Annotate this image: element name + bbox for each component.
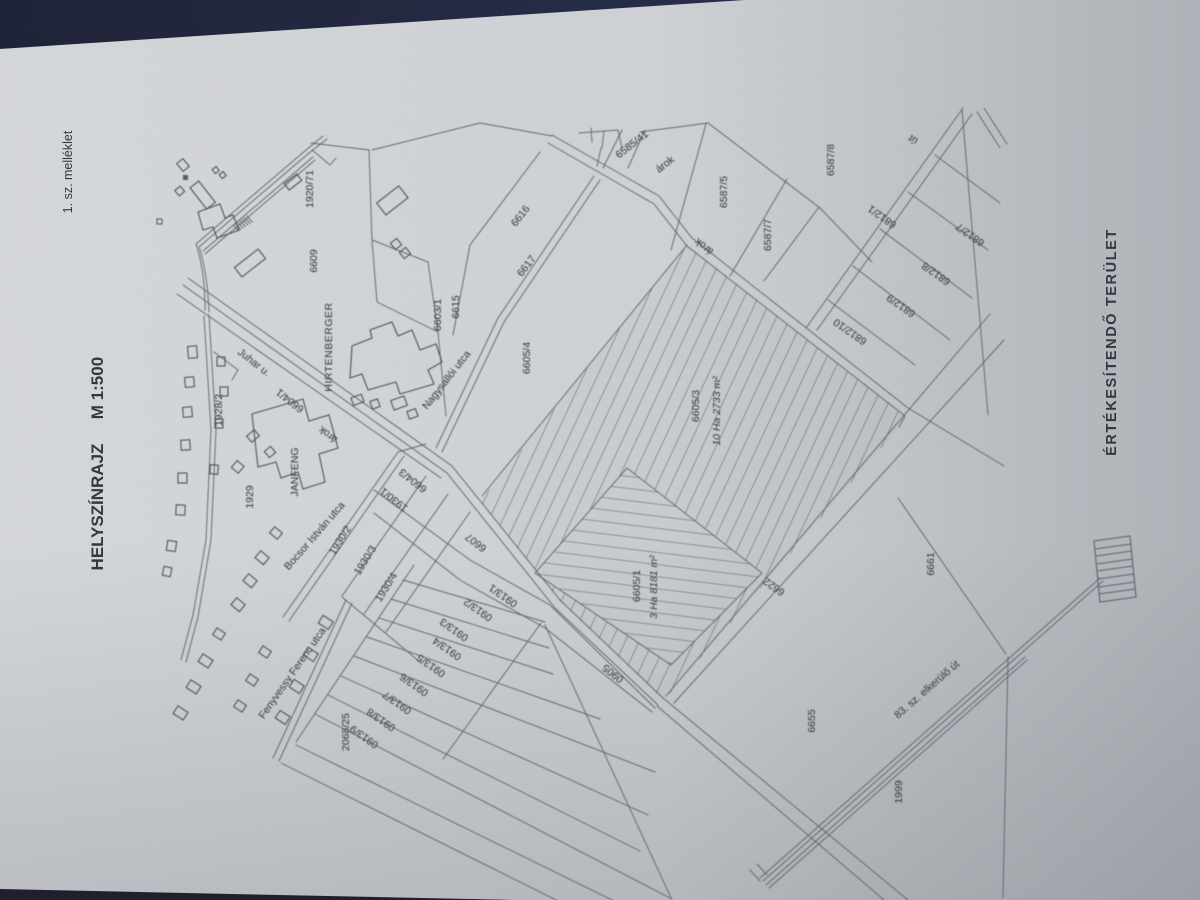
svg-text:1999: 1999: [893, 780, 905, 804]
svg-text:6605/3: 6605/3: [690, 390, 702, 422]
svg-text:1. sz. melléklet: 1. sz. melléklet: [61, 130, 75, 213]
svg-text:10 Ha 2733 m²: 10 Ha 2733 m²: [711, 376, 723, 446]
svg-text:1928/2: 1928/2: [213, 394, 225, 426]
svg-text:1929: 1929: [244, 485, 256, 509]
svg-text:M 1:500: M 1:500: [88, 357, 107, 419]
svg-text:6609: 6609: [308, 249, 320, 273]
svg-text:6587/5: 6587/5: [718, 176, 730, 208]
svg-text:3 Ha 8181 m²: 3 Ha 8181 m²: [648, 555, 660, 619]
svg-text:6587/7: 6587/7: [762, 219, 774, 251]
svg-text:HIRTENBERGER: HIRTENBERGER: [323, 302, 335, 391]
svg-text:1920/71: 1920/71: [304, 170, 316, 208]
svg-text:HELYSZÍNRAJZ: HELYSZÍNRAJZ: [88, 444, 107, 571]
svg-text:6661: 6661: [925, 552, 937, 576]
svg-text:6615: 6615: [450, 295, 462, 319]
svg-text:6605/1: 6605/1: [631, 570, 643, 602]
svg-text:ÉRTÉKESÍTENDŐ TERÜLET: ÉRTÉKESÍTENDŐ TERÜLET: [1102, 228, 1120, 456]
svg-text:6655: 6655: [806, 709, 818, 733]
svg-text:6605/4: 6605/4: [521, 342, 533, 374]
svg-text:6603/1: 6603/1: [432, 299, 444, 331]
svg-text:6587/8: 6587/8: [825, 144, 837, 176]
svg-text:JANFENG: JANFENG: [289, 447, 301, 496]
